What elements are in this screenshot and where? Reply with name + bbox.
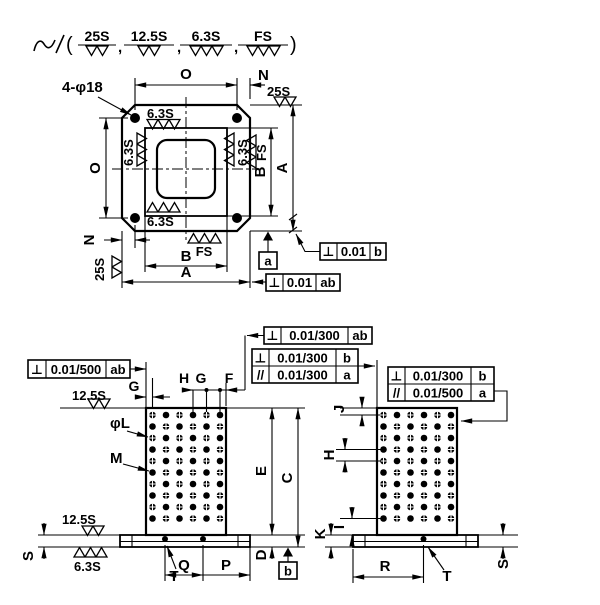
tol-datum-ref: b (343, 351, 351, 366)
finish-column-left: 12.5S (72, 388, 110, 409)
triangle-mark-icon (138, 46, 160, 56)
dim-d: D (253, 549, 270, 560)
datum-label: a (264, 254, 272, 269)
dim-n-top: N (258, 67, 269, 84)
finish-mark-12-5s: 12.5S (124, 28, 174, 56)
tol-datum-ref: a (343, 368, 351, 383)
dim-o-top: O (180, 66, 192, 83)
tol-symbol: ⊥ (31, 362, 43, 377)
finish-label: 6.3S (74, 559, 101, 574)
datum-triangle-icon (283, 548, 293, 557)
dim-s: S (495, 559, 512, 569)
triangle-mark-icon (188, 234, 221, 244)
tol-value: 0.01/300 (289, 328, 340, 343)
t-leader (167, 546, 176, 569)
engineering-drawing: ( 25S , 12.5S , 6.3S , FS ) (0, 0, 600, 600)
tol-symbol: ⊥ (323, 244, 335, 259)
wave-slash-icon (56, 35, 64, 53)
hole-grid (149, 412, 223, 522)
tolerance-frame-top: ⊥ 0.01/300 ab (247, 327, 372, 344)
tol-datum-ref: a (479, 386, 487, 401)
tol-symbol: // (257, 368, 265, 383)
finish-legend: ( 25S , 12.5S , 6.3S , FS ) (34, 28, 297, 56)
dim-o-left: O (87, 162, 104, 174)
hole-callout: 4-φ18 (62, 79, 103, 96)
tol-value: 0.01/300 (277, 351, 328, 366)
finish-label: 12.5S (62, 512, 96, 527)
finish-top-right: 25S (267, 84, 296, 107)
dim-f: F (225, 370, 234, 386)
dim-g-left: G (129, 378, 140, 394)
datum-a: a (259, 232, 277, 270)
triangle-mark-icon (112, 256, 122, 278)
base-hole (200, 536, 206, 542)
tol-symbol: // (393, 386, 401, 401)
tol-symbol: ⊥ (269, 275, 281, 290)
dim-b-bottom: B (181, 248, 192, 265)
base-hole (421, 536, 427, 542)
tol-value: 0.01 (287, 275, 312, 290)
finish-label: 6.3S (147, 106, 174, 121)
tol-datum-ref: ab (110, 362, 125, 377)
dim-q: Q (178, 557, 190, 574)
dim-b-right: B (252, 166, 269, 177)
triangle-mark-icon (147, 203, 180, 213)
tol-value: 0.01 (341, 244, 366, 259)
dim-e: E (253, 466, 270, 476)
finish-label: 6.3S (147, 214, 174, 229)
tol-value: 0.01/300 (277, 368, 328, 383)
tolerance-frame-perp-ab: ⊥ 0.01 ab (252, 274, 340, 291)
hole-label-m: M (110, 450, 123, 467)
tolerance-frame-perp-b: ⊥ 0.01 b (296, 234, 386, 260)
legend-close-paren: ) (290, 34, 297, 56)
wave-symbol-icon (34, 40, 55, 51)
finish-label: 12.5S (131, 28, 168, 44)
tol-symbol: ⊥ (255, 351, 267, 366)
triangle-mark-icon (247, 46, 280, 56)
triangle-mark-icon (225, 133, 235, 166)
finish-label: FS (254, 28, 272, 44)
dim-g: G (196, 370, 207, 386)
dim-c: C (279, 472, 296, 483)
column-outline (146, 408, 226, 535)
tol-symbol: ⊥ (267, 328, 279, 343)
dim-h: H (321, 450, 338, 461)
tol-value: 0.01/500 (413, 386, 464, 401)
tol-datum-ref: ab (320, 275, 335, 290)
t-leader (428, 547, 444, 570)
tolerance-frame-right-view: ⊥ 0.01/300 b // 0.01/500 a (388, 367, 507, 421)
legend-comma: , (118, 39, 122, 56)
dim-r: R (380, 558, 391, 575)
datum-triangle-icon (263, 232, 273, 241)
tol-value: 0.01/300 (413, 369, 464, 384)
finish-base-top: 12.5S (62, 512, 104, 536)
tol-datum-ref: b (374, 244, 382, 259)
triangle-mark-icon (86, 46, 108, 56)
finish-inner-top: 6.3S (147, 106, 180, 129)
finish-outer-bottom: FS (188, 234, 221, 260)
column-outline (377, 408, 457, 535)
datum-b: b (279, 548, 297, 580)
top-view: 4-φ18 O N O B A (62, 66, 386, 291)
finish-label: 25S (85, 28, 110, 44)
hole-grid (380, 412, 454, 522)
finish-label: FS (196, 244, 213, 259)
hole-callout-leader (98, 97, 131, 115)
finish-base-bottom: 6.3S (74, 548, 107, 575)
tol-symbol: ⊥ (391, 369, 403, 384)
drawing-canvas: ( 25S , 12.5S , 6.3S , FS ) (0, 0, 600, 600)
hole-dia-label: φL (110, 415, 130, 432)
finish-bottom-left: 25S (92, 256, 122, 281)
dim-j: J (331, 405, 348, 413)
dim-i: I (331, 525, 348, 529)
triangle-mark-icon (190, 46, 223, 56)
triangle-mark-icon (74, 548, 107, 558)
legend-open-paren: ( (66, 34, 73, 56)
dim-n-bottom: N (81, 235, 98, 246)
finish-label: 6.3S (121, 139, 136, 166)
finish-mark-fs: FS (238, 28, 288, 56)
finish-mark-25s: 25S (78, 28, 116, 56)
triangle-mark-icon (82, 526, 104, 536)
tolerance-frame-mid: ⊥ 0.01/300 b // 0.01/300 a (252, 349, 377, 408)
tol-datum-ref: ab (352, 328, 367, 343)
legend-comma: , (234, 39, 238, 56)
finish-mark-6-3s: 6.3S (180, 28, 232, 56)
finish-label: 6.3S (192, 28, 221, 44)
dim-s: S (20, 551, 37, 561)
tol-datum-ref: b (479, 369, 487, 384)
dim-a-bottom: A (181, 264, 192, 281)
legend-comma: , (177, 39, 181, 56)
finish-label: 25S (92, 258, 107, 281)
dim-k: K (312, 528, 329, 539)
right-view: ⊥ 0.01/300 b // 0.01/500 a J H I K (312, 367, 518, 585)
finish-inner-left: 6.3S (121, 133, 147, 166)
finish-inner-right: 6.3S (225, 133, 251, 166)
dim-h: H (179, 370, 189, 386)
base-hole (162, 536, 168, 542)
datum-label: b (284, 564, 292, 579)
tolerance-frame-left: ⊥ 0.01/500 ab (28, 360, 146, 378)
tol-value: 0.01/500 (51, 362, 102, 377)
label-t: T (442, 568, 451, 585)
dim-p: P (221, 557, 231, 574)
dim-a-right: A (274, 162, 291, 173)
hole-dia-leader (127, 431, 148, 437)
